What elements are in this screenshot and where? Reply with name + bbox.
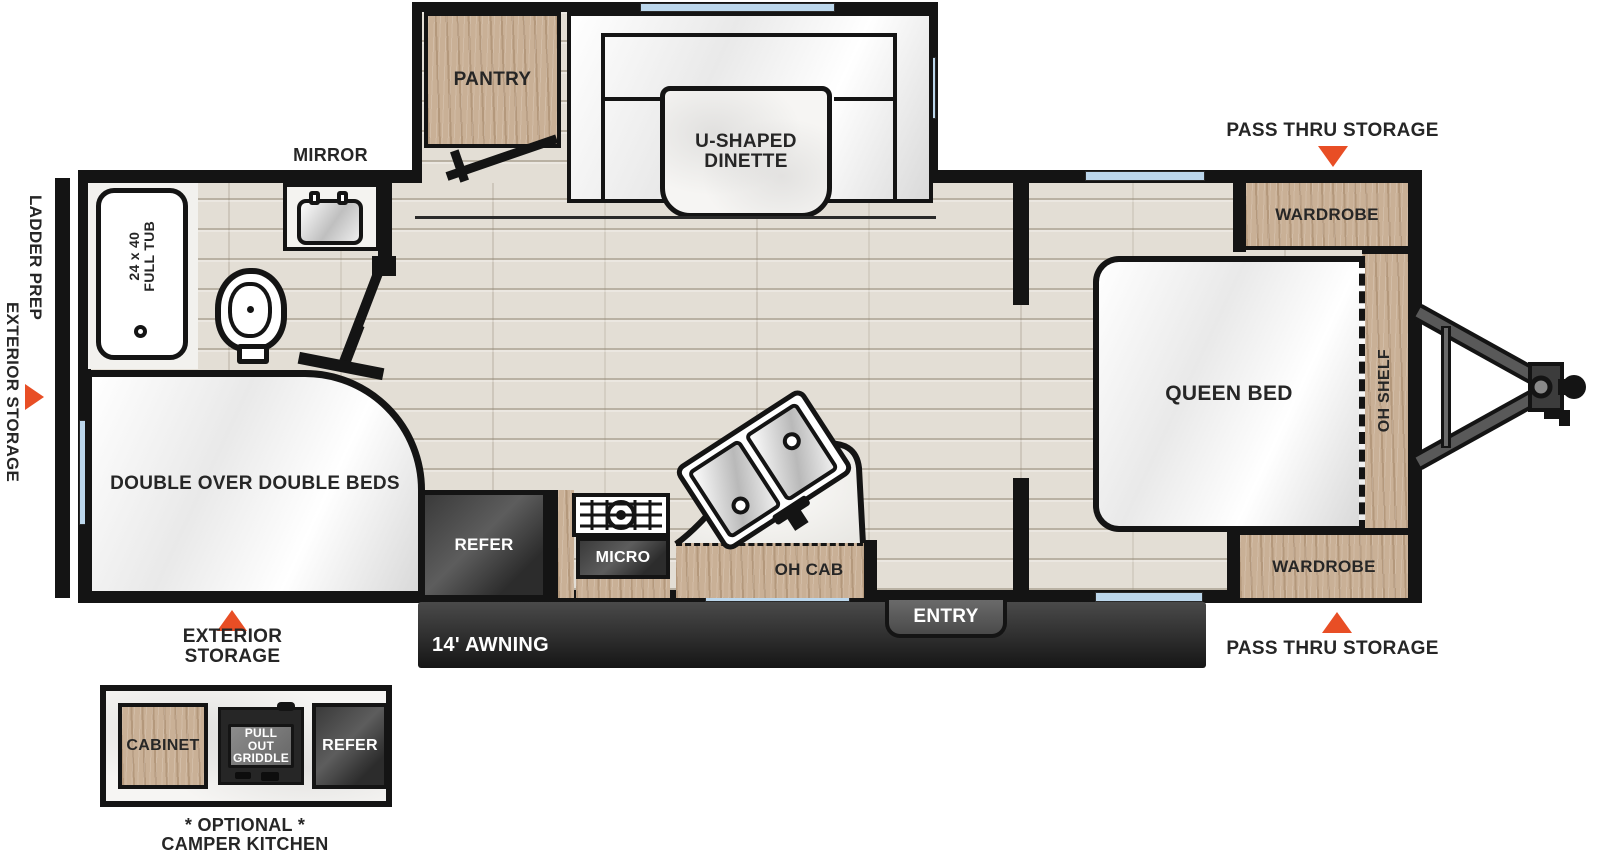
pass-thru-storage-bottom-label: PASS THRU STORAGE — [1225, 638, 1440, 659]
wardrobe-top-label: WARDROBE — [1246, 183, 1408, 246]
dinette-seat-divider-right — [834, 97, 893, 101]
bedroom-top-window — [1085, 171, 1205, 181]
microwave: MICRO — [576, 537, 670, 579]
slideout-top-window — [640, 3, 835, 12]
camper-kitchen-refer: REFER — [312, 703, 388, 789]
dinette-label-line2: DINETTE — [704, 152, 787, 172]
dinette-bench-line-left — [601, 36, 605, 200]
toilet-tank — [237, 344, 269, 364]
rear-bumper-bar — [55, 178, 70, 598]
oh-cab: OH CAB — [676, 543, 872, 598]
camper-kitchen-optional-label: * OPTIONAL * — [155, 816, 335, 835]
toilet — [215, 268, 287, 352]
exterior-storage-left-arrow — [25, 384, 44, 410]
refrigerator: REFER — [420, 490, 548, 600]
faucet-knob-left — [309, 191, 320, 205]
ladder-prep-label: LADDER PREP — [26, 195, 44, 320]
exterior-storage-left-wrap: EXTERIOR STORAGE — [0, 292, 24, 492]
awning-bar: 14' AWNING — [418, 602, 1206, 668]
camper-kitchen-cabinet-label: CABINET — [122, 707, 204, 785]
pass-thru-storage-top-label: PASS THRU STORAGE — [1225, 120, 1440, 141]
wardrobe-top-wall — [1233, 183, 1246, 252]
refrigerator-label: REFER — [425, 495, 543, 595]
camper-kitchen-griddle: PULL OUT GRIDDLE — [218, 707, 304, 785]
stove-cooktop — [572, 493, 670, 537]
oh-shelf: OH SHELF — [1362, 250, 1408, 532]
pass-thru-storage-top-arrow — [1318, 146, 1348, 167]
wardrobe-bottom-wall — [1227, 532, 1240, 598]
bunk-beds-label: DOUBLE OVER DOUBLE BEDS — [92, 377, 418, 591]
griddle-label-line2: GRIDDLE — [233, 752, 289, 765]
dinette-seat-divider-left — [605, 97, 662, 101]
mirror-label: MIRROR — [283, 145, 378, 165]
oh-cab-label: OH CAB — [754, 558, 864, 582]
toilet-flush-dot — [247, 306, 254, 313]
dinette-label-line1: U-SHAPED — [695, 132, 797, 152]
dinette-bench-line-right — [893, 36, 897, 200]
counter-end-wall — [864, 540, 877, 598]
bedroom-wall-top — [1013, 183, 1029, 305]
griddle-label-line1: PULL OUT — [231, 727, 291, 752]
griddle-foot-right — [261, 772, 279, 781]
wardrobe-bottom: WARDROBE — [1240, 531, 1408, 598]
floorplan-diagram: PANTRY U-SHAPED DINETTE WARDROBE WARDROB… — [0, 0, 1600, 863]
slideout-seam — [415, 216, 936, 219]
awning-label: 14' AWNING — [432, 632, 572, 658]
sink-drain-left — [728, 493, 753, 518]
tub-drain-hole — [138, 329, 143, 334]
entry-label: ENTRY — [889, 600, 1003, 634]
ladder-prep-wrap: LADDER PREP — [22, 188, 48, 328]
tub-label-line1: 24 x 40 — [127, 221, 142, 292]
bedroom-bottom-window — [1095, 592, 1203, 602]
queen-bed: QUEEN BED — [1093, 256, 1365, 532]
dinette-table: U-SHAPED DINETTE — [660, 86, 832, 218]
exterior-storage-bottom-label: EXTERIOR STORAGE — [135, 636, 330, 657]
refer-side-wall — [548, 490, 558, 600]
tub-label-line2: FULL TUB — [142, 221, 157, 292]
sink-drain-right — [779, 429, 804, 454]
camper-kitchen-cabinet: CABINET — [118, 703, 208, 789]
entry-step: ENTRY — [885, 600, 1007, 638]
camper-kitchen-refer-label: REFER — [316, 707, 384, 785]
bedroom-wall-bottom — [1013, 478, 1029, 598]
camper-kitchen-title: CAMPER KITCHEN — [150, 835, 340, 854]
pantry-cabinet: PANTRY — [424, 12, 561, 148]
faucet-knob-right — [337, 191, 348, 205]
queen-bed-label: QUEEN BED — [1099, 262, 1359, 526]
vanity — [283, 183, 380, 251]
microwave-label: MICRO — [580, 541, 666, 575]
wall-top-left — [78, 170, 412, 183]
pantry-label: PANTRY — [428, 16, 557, 144]
griddle-hose — [277, 702, 295, 711]
vanity-sink — [297, 199, 363, 245]
bathtub: 24 x 40 FULL TUB — [96, 188, 188, 360]
counter-under-micro — [576, 579, 670, 598]
pass-thru-storage-bottom-arrow — [1322, 612, 1352, 633]
stove-burner-icon — [576, 497, 666, 533]
dinette-bench-line-top — [601, 33, 897, 37]
camper-kitchen-box: CABINET PULL OUT GRIDDLE REFER — [100, 685, 392, 807]
exterior-storage-left-label: EXTERIOR STORAGE — [3, 302, 21, 482]
oh-shelf-label: OH SHELF — [1377, 349, 1394, 432]
bunk-beds: DOUBLE OVER DOUBLE BEDS — [85, 370, 425, 598]
wardrobe-top: WARDROBE — [1246, 183, 1408, 250]
griddle-foot-left — [235, 772, 251, 779]
wardrobe-bottom-label: WARDROBE — [1240, 535, 1408, 598]
hitch-tongue — [1414, 292, 1590, 482]
